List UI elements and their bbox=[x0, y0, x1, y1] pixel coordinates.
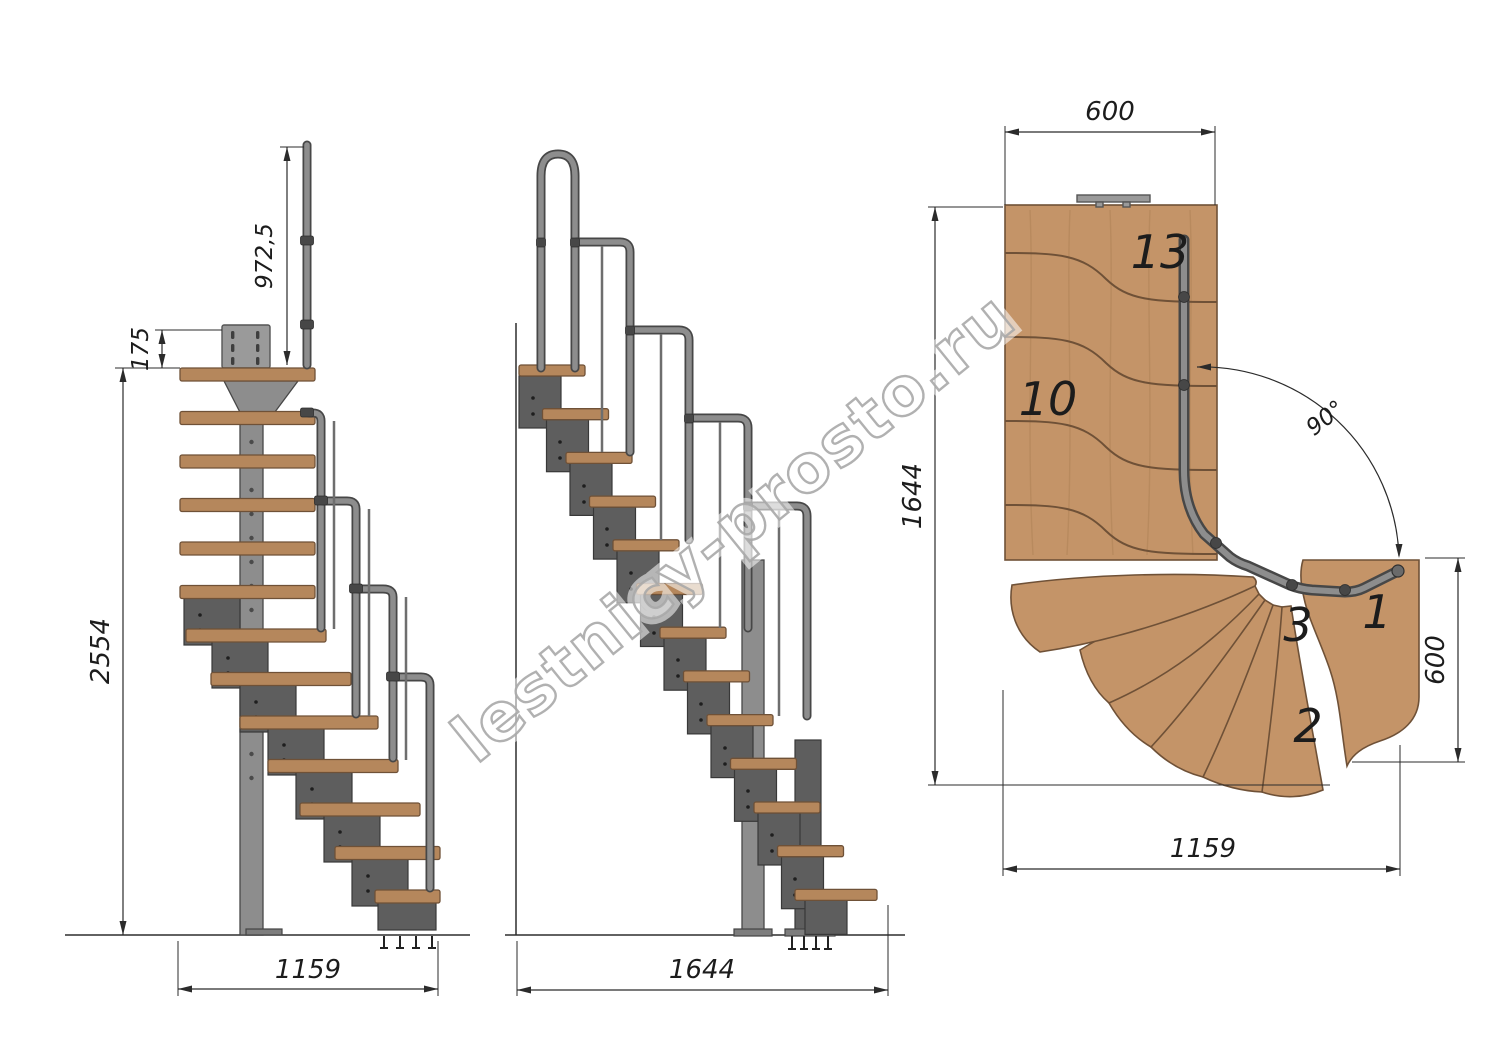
front-elevation-view: 2554 175 972,5 1159 bbox=[65, 145, 470, 996]
plan-step-3-label: 3 bbox=[1283, 598, 1312, 652]
dim-175-label: 175 bbox=[128, 327, 154, 371]
tread bbox=[180, 455, 315, 468]
watermark-text: lestnicy-prosto.ru bbox=[438, 278, 1030, 778]
tread bbox=[180, 368, 315, 381]
dim-front-1159-label: 1159 bbox=[275, 955, 341, 985]
tread bbox=[707, 715, 773, 726]
dim-plan-angle: 90° bbox=[1197, 364, 1403, 559]
tread bbox=[335, 847, 440, 860]
dim-front-width: 1159 bbox=[178, 941, 438, 996]
plan-step-1-label: 1 bbox=[1362, 585, 1391, 639]
staircase-drawing-canvas: 2554 175 972,5 1159 bbox=[0, 0, 1500, 1061]
dim-side-1644-label: 1644 bbox=[669, 955, 735, 985]
dim-plan-1159-label: 1159 bbox=[1170, 834, 1236, 864]
tread bbox=[778, 846, 844, 857]
dim-plan-600-right-label: 600 bbox=[1421, 635, 1451, 685]
tread bbox=[795, 889, 877, 900]
plan-step-10-label: 10 bbox=[1019, 372, 1078, 426]
tread bbox=[180, 586, 315, 599]
tread bbox=[268, 760, 398, 773]
tread bbox=[731, 758, 797, 769]
tread bbox=[180, 499, 315, 512]
staircase-technical-drawing: 2554 175 972,5 1159 bbox=[0, 0, 1500, 1061]
plan-step-2-label: 2 bbox=[1293, 699, 1322, 753]
dim-front-total-height: 2554 bbox=[86, 368, 180, 935]
dim-plan-600-top-label: 600 bbox=[1085, 97, 1135, 127]
side-anchor-bolts bbox=[788, 936, 832, 949]
dim-plan-90deg-label: 90° bbox=[1302, 396, 1350, 442]
tread bbox=[543, 409, 609, 420]
dim-front-top-offset: 175 bbox=[128, 327, 222, 371]
tread bbox=[590, 496, 656, 507]
tread bbox=[754, 802, 820, 813]
tread bbox=[180, 412, 315, 425]
front-anchor-bolts bbox=[380, 936, 436, 948]
plan-view: 13 10 3 1 2 600 1644 bbox=[898, 97, 1465, 876]
dim-plan-top-width: 600 bbox=[1005, 97, 1215, 205]
tread bbox=[300, 803, 420, 816]
watermark: lestnicy-prosto.ru lestnicy-prosto.ru bbox=[438, 278, 1030, 778]
tread bbox=[211, 673, 351, 686]
front-treads bbox=[180, 368, 440, 903]
tread bbox=[186, 629, 326, 642]
dim-972-label: 972,5 bbox=[252, 223, 278, 289]
dim-2554-label: 2554 bbox=[86, 618, 116, 684]
tread bbox=[684, 671, 750, 682]
tread bbox=[180, 542, 315, 555]
plan-step-13-label: 13 bbox=[1131, 225, 1190, 279]
front-mounting-plate bbox=[222, 325, 270, 368]
front-column-base bbox=[246, 929, 282, 935]
dim-plan-1644-label: 1644 bbox=[898, 463, 928, 529]
plan-rail-end-cap bbox=[1392, 565, 1404, 577]
tread bbox=[660, 627, 726, 638]
tread bbox=[566, 452, 632, 463]
